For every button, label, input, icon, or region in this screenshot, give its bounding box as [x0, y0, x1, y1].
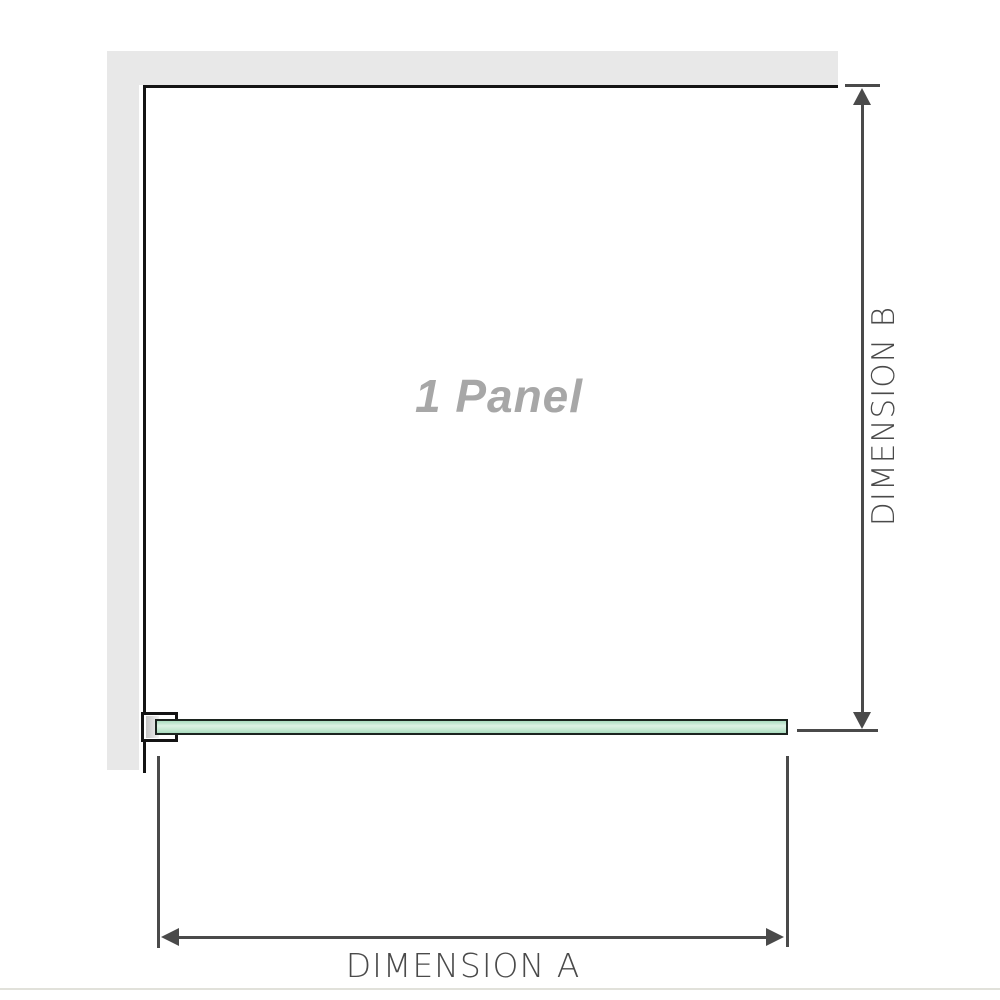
panel-label: 1 Panel — [349, 370, 649, 422]
dimension-diagram: 1 Panel DIMENSION B DIMENSION A — [0, 0, 1000, 1000]
panel-left-edge — [143, 85, 146, 773]
glass-panel — [155, 719, 788, 735]
dimension-b-label: DIMENSION B — [866, 216, 902, 616]
arrow-left-icon — [161, 928, 179, 946]
dimension-b-top-tick — [845, 84, 880, 87]
arrow-right-icon — [766, 928, 784, 946]
bottom-divider — [0, 988, 1000, 990]
wall-left — [107, 51, 139, 770]
dimension-a-right-extension — [786, 756, 789, 947]
dimension-b-bottom-tick — [797, 729, 878, 732]
dimension-a-label: DIMENSION A — [263, 948, 663, 984]
wall-top — [107, 51, 838, 85]
dimension-b-line — [861, 100, 864, 715]
panel-top-edge — [143, 85, 838, 88]
arrow-up-icon — [853, 88, 871, 105]
dimension-a-line — [175, 936, 770, 939]
arrow-down-icon — [853, 712, 871, 729]
dimension-a-left-extension — [157, 756, 160, 948]
